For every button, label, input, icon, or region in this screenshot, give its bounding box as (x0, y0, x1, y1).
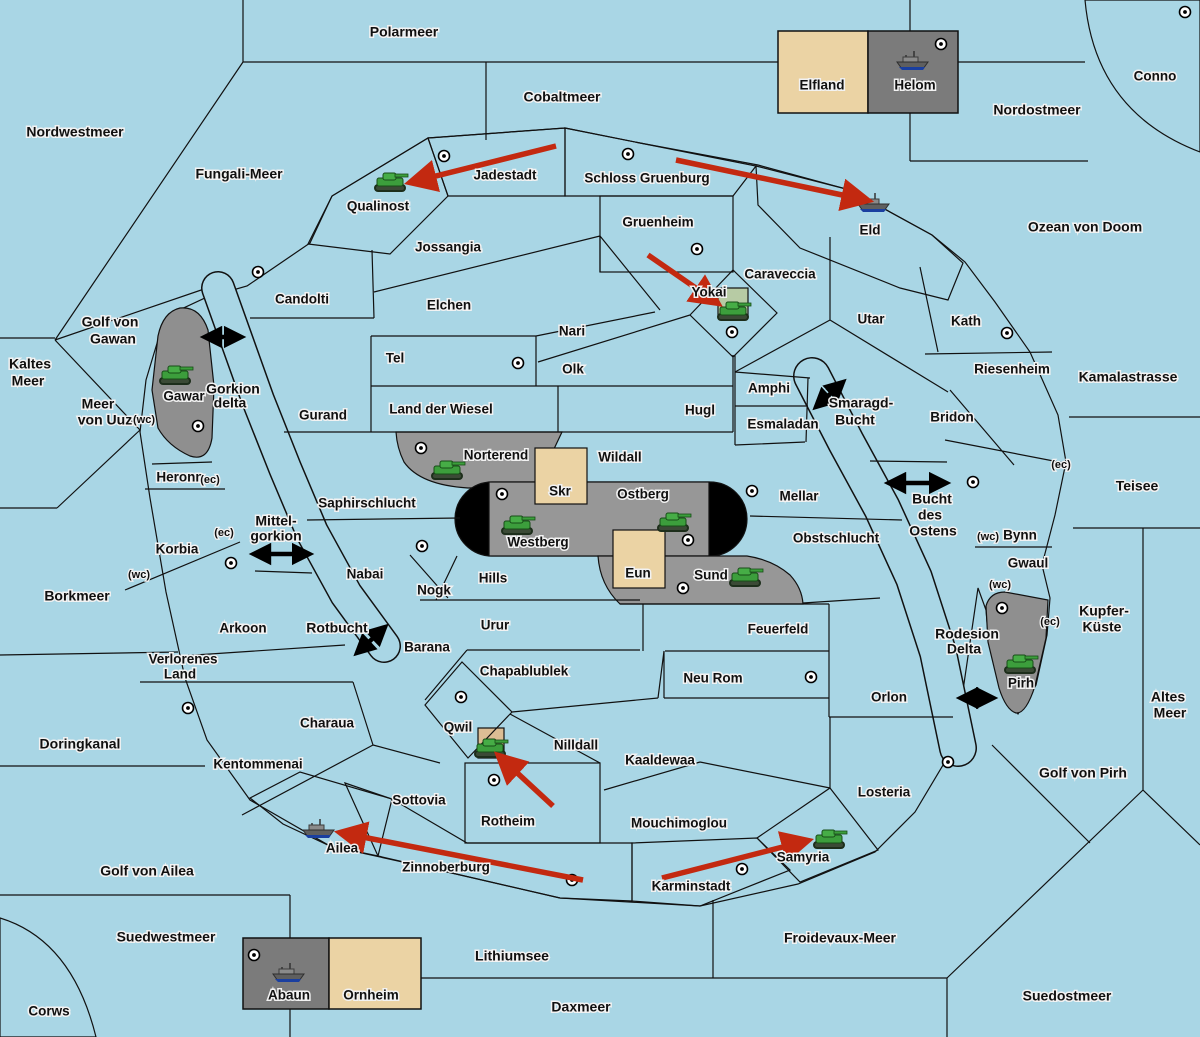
supply-center-dot (249, 950, 260, 961)
supply-center-dot (683, 535, 694, 546)
label-utar: Utar (857, 312, 885, 327)
label-verlorenes: Verlorenes (148, 652, 217, 667)
label-golf-von: Golf von (82, 314, 139, 330)
label-olk: Olk (562, 362, 584, 377)
label-bynn: Bynn (1003, 528, 1037, 543)
label-kath: Kath (951, 314, 981, 329)
label-candolti: Candolti (275, 292, 329, 307)
label-arkoon: Arkoon (219, 621, 266, 636)
label-qwil: Qwil (444, 720, 473, 735)
supply-center-dot (1180, 7, 1191, 18)
label-bucht: Bucht (912, 491, 952, 507)
supply-center-dot (226, 558, 237, 569)
label-schloss-gruenburg: Schloss Gruenburg (584, 171, 709, 186)
supply-center-dot (1002, 328, 1013, 339)
label-urur: Urur (481, 618, 510, 633)
supply-center-dot (806, 672, 817, 683)
label-kupfer-: Kupfer- (1079, 603, 1129, 619)
label-doringkanal: Doringkanal (40, 736, 121, 752)
label-meer: Meer (82, 396, 115, 412)
label-meer: Meer (12, 373, 45, 389)
supply-center-dot (497, 489, 508, 500)
label-des: des (918, 507, 942, 523)
label-jadestadt: Jadestadt (473, 168, 537, 183)
label-saphirschlucht: Saphirschlucht (318, 496, 416, 511)
label-skr: Skr (549, 484, 572, 499)
label-daxmeer: Daxmeer (551, 999, 611, 1015)
label-lithiumsee: Lithiumsee (475, 948, 549, 964)
map-canvas[interactable]: PolarmeerCobaltmeerNordostmeerNordwestme… (0, 0, 1200, 1037)
supply-center-dot (678, 583, 689, 594)
label--ec-: (ec) (214, 527, 234, 539)
label-kaaldewaa: Kaaldewaa (625, 753, 695, 768)
label-gawan: Gawan (90, 331, 136, 347)
label-ozean-von-doom: Ozean von Doom (1028, 219, 1142, 235)
label-karminstadt: Karminstadt (652, 879, 731, 894)
label-borkmeer: Borkmeer (44, 588, 110, 604)
label-suedwestmeer: Suedwestmeer (117, 929, 216, 945)
label-ailea: Ailea (326, 841, 359, 856)
label-heronn: Heronn (156, 470, 203, 485)
label-kentommenai: Kentommenai (213, 757, 302, 772)
label-losteria: Losteria (858, 785, 911, 800)
diplomacy-game-map[interactable]: PolarmeerCobaltmeerNordostmeerNordwestme… (0, 0, 1200, 1037)
label-ornheim: Ornheim (343, 988, 399, 1003)
label-gruenheim: Gruenheim (622, 215, 693, 230)
label--ec-: (ec) (200, 474, 220, 486)
supply-center-dot (692, 244, 703, 255)
supply-center-dot (968, 477, 979, 488)
supply-center-dot (253, 267, 264, 278)
label-teisee: Teisee (1116, 478, 1159, 494)
label--wc-: (wc) (989, 579, 1011, 591)
supply-center-dot (747, 486, 758, 497)
label-delta: delta (214, 395, 247, 411)
supply-center-dot (489, 775, 500, 786)
label-nabai: Nabai (347, 567, 384, 582)
label-nari: Nari (559, 324, 585, 339)
label-samyria: Samyria (777, 850, 830, 865)
label-smaragd-: Smaragd- (829, 395, 894, 411)
supply-center-dot (623, 149, 634, 160)
label-orlon: Orlon (871, 690, 907, 705)
label-ostens: Ostens (909, 523, 957, 539)
label-ostberg: Ostberg (617, 487, 669, 502)
label-von-uuz: von Uuz (78, 412, 132, 428)
label-elchen: Elchen (427, 298, 471, 313)
label-golf-von-pirh: Golf von Pirh (1039, 765, 1127, 781)
label-helom: Helom (894, 78, 935, 93)
label-nogk: Nogk (417, 583, 451, 598)
label-yokai: Yokai (691, 285, 726, 300)
label-korbia: Korbia (156, 542, 199, 557)
label-nordostmeer: Nordostmeer (993, 102, 1081, 118)
supply-center-dot (936, 39, 947, 50)
label-barana: Barana (404, 640, 450, 655)
label-meer: Meer (1154, 705, 1187, 721)
label-caraveccia: Caraveccia (744, 267, 816, 282)
supply-center-dot (737, 864, 748, 875)
label-altes: Altes (1151, 689, 1185, 705)
label-abaun: Abaun (268, 988, 310, 1003)
label-esmaladan: Esmaladan (747, 417, 818, 432)
label-golf-von-ailea: Golf von Ailea (100, 863, 194, 879)
label-bucht: Bucht (835, 412, 875, 428)
label-rodesion: Rodesion (935, 626, 999, 642)
label-elfland: Elfland (799, 78, 844, 93)
supply-center-dot (727, 327, 738, 338)
label-hills: Hills (479, 571, 508, 586)
label--ec-: (ec) (1040, 616, 1060, 628)
label-eld: Eld (859, 223, 880, 238)
label-amphi: Amphi (748, 381, 790, 396)
label-eun: Eun (625, 566, 651, 581)
supply-center-dot (417, 541, 428, 552)
label-froidevaux-meer: Froidevaux-Meer (784, 930, 897, 946)
label--wc-: (wc) (977, 531, 999, 543)
label-cobaltmeer: Cobaltmeer (523, 89, 601, 105)
supply-center-dot (183, 703, 194, 714)
label-hugl: Hugl (685, 403, 715, 418)
supply-center-dot (439, 151, 450, 162)
label-sund: Sund (694, 568, 728, 583)
label-corws: Corws (28, 1004, 69, 1019)
label--wc-: (wc) (133, 414, 155, 426)
supply-center-dot (513, 358, 524, 369)
label-riesenheim: Riesenheim (974, 362, 1050, 377)
label-westberg: Westberg (507, 535, 568, 550)
label-nordwestmeer: Nordwestmeer (26, 124, 124, 140)
label-mittel-: Mittel- (255, 513, 297, 529)
label-charaua: Charaua (300, 716, 355, 731)
label-land: Land (164, 667, 196, 682)
label-conno: Conno (1134, 69, 1177, 84)
label-rotbucht: Rotbucht (306, 620, 368, 636)
label-feuerfeld: Feuerfeld (748, 622, 809, 637)
province-elfland (778, 31, 868, 113)
label-tel: Tel (386, 351, 405, 366)
label-mouchimoglou: Mouchimoglou (631, 816, 727, 831)
label-kaltes: Kaltes (9, 356, 51, 372)
label--ec-: (ec) (1051, 459, 1071, 471)
label-obstschlucht: Obstschlucht (793, 531, 880, 546)
supply-center-dot (416, 443, 427, 454)
label-rotheim: Rotheim (481, 814, 535, 829)
label-gwaul: Gwaul (1008, 556, 1049, 571)
supply-center-dot (456, 692, 467, 703)
label--wc-: (wc) (128, 569, 150, 581)
label-sottovia: Sottovia (392, 793, 446, 808)
label-suedostmeer: Suedostmeer (1023, 988, 1112, 1004)
label-norterend: Norterend (464, 448, 529, 463)
label-gorkion: gorkion (250, 528, 301, 544)
label-k-ste: Küste (1083, 619, 1122, 635)
label-zinnoberburg: Zinnoberburg (402, 860, 490, 875)
label-gurand: Gurand (299, 408, 347, 423)
label-gawar: Gawar (163, 389, 205, 404)
label-jossangia: Jossangia (415, 240, 482, 255)
label-delta: Delta (947, 641, 981, 657)
label-fungali-meer: Fungali-Meer (195, 166, 283, 182)
supply-center-dot (193, 421, 204, 432)
supply-center-dot (943, 757, 954, 768)
label-qualinost: Qualinost (347, 199, 410, 214)
label-polarmeer: Polarmeer (370, 24, 439, 40)
supply-center-dot (997, 603, 1008, 614)
label-mellar: Mellar (779, 489, 819, 504)
label-kamalastrasse: Kamalastrasse (1079, 369, 1178, 385)
label-bridon: Bridon (930, 410, 974, 425)
label-pirh: Pirh (1008, 676, 1034, 691)
label-wildall: Wildall (598, 450, 641, 465)
label-land-der-wiesel: Land der Wiesel (389, 402, 492, 417)
label-neu-rom: Neu Rom (683, 671, 742, 686)
label-nilldall: Nilldall (554, 738, 598, 753)
label-chapablublek: Chapablublek (480, 664, 569, 679)
